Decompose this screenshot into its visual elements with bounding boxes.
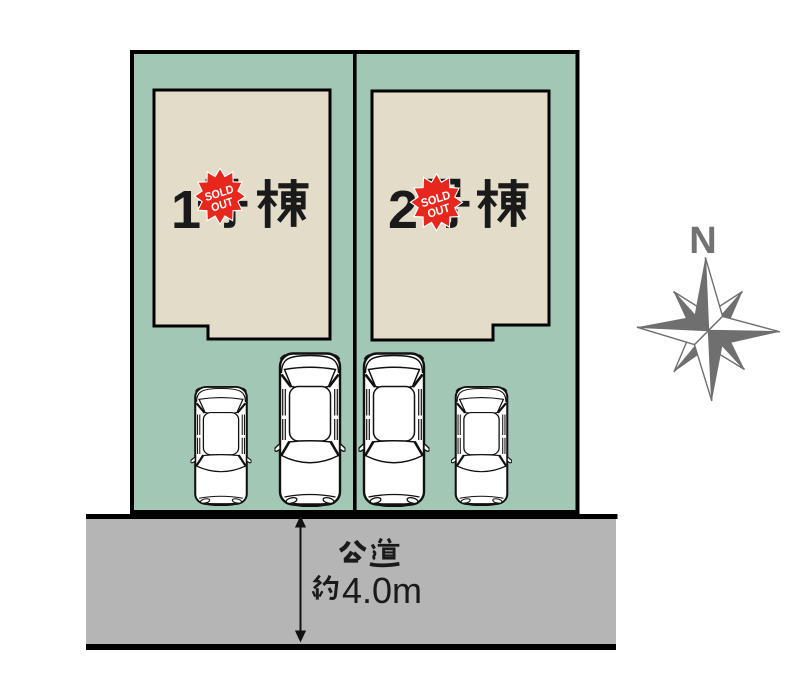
svg-text:2: 2: [388, 180, 418, 240]
svg-text:1: 1: [171, 180, 201, 240]
svg-text:4.0m: 4.0m: [342, 570, 422, 611]
svg-text:N: N: [689, 220, 716, 262]
